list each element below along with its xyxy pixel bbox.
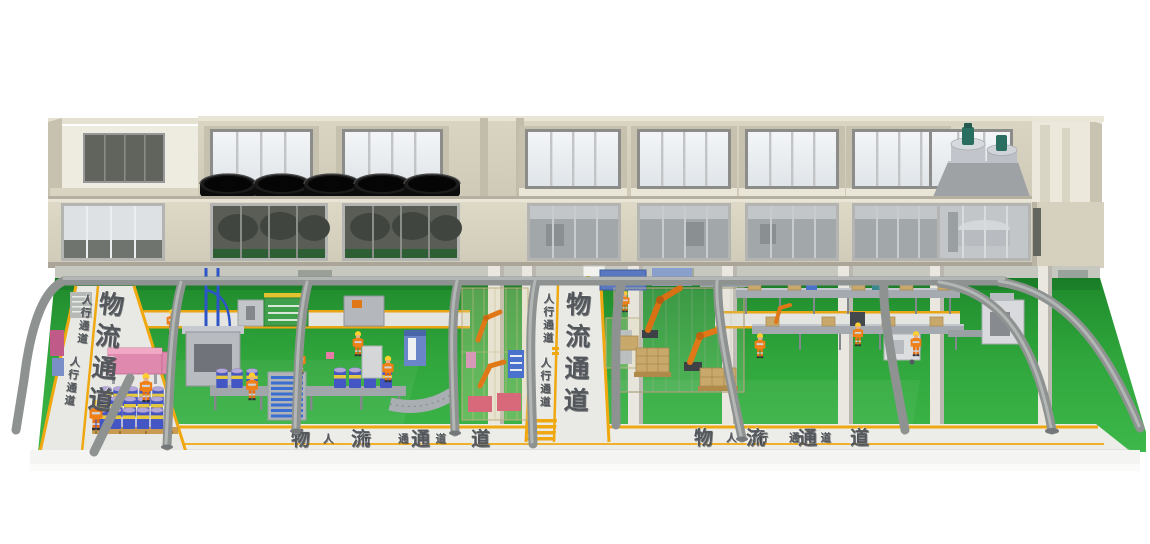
- center-aisle-pedestrian-label-2: 人行通道: [539, 357, 550, 409]
- center-aisle-pedestrian-label-1: 人行通道: [542, 293, 553, 345]
- factory-3d-render: 物流通道 人行通道 人行通道 物流通道 人行通道 人行通道 物流通道 人行通道 …: [0, 0, 1150, 544]
- center-aisle-logistics-label: 物流通道: [562, 291, 590, 420]
- left-aisle-pedestrian-label-2: 人行通道: [63, 355, 81, 408]
- bottom-right-pedestrian-label: 人行通道: [726, 430, 852, 445]
- bottom-left-pedestrian-label: 人行通道: [323, 431, 473, 446]
- aisle-labels: 物流通道 人行通道 人行通道 物流通道 人行通道 人行通道 物流通道 人行通道 …: [0, 0, 1150, 544]
- left-aisle-pedestrian-label-1: 人行通道: [76, 293, 93, 346]
